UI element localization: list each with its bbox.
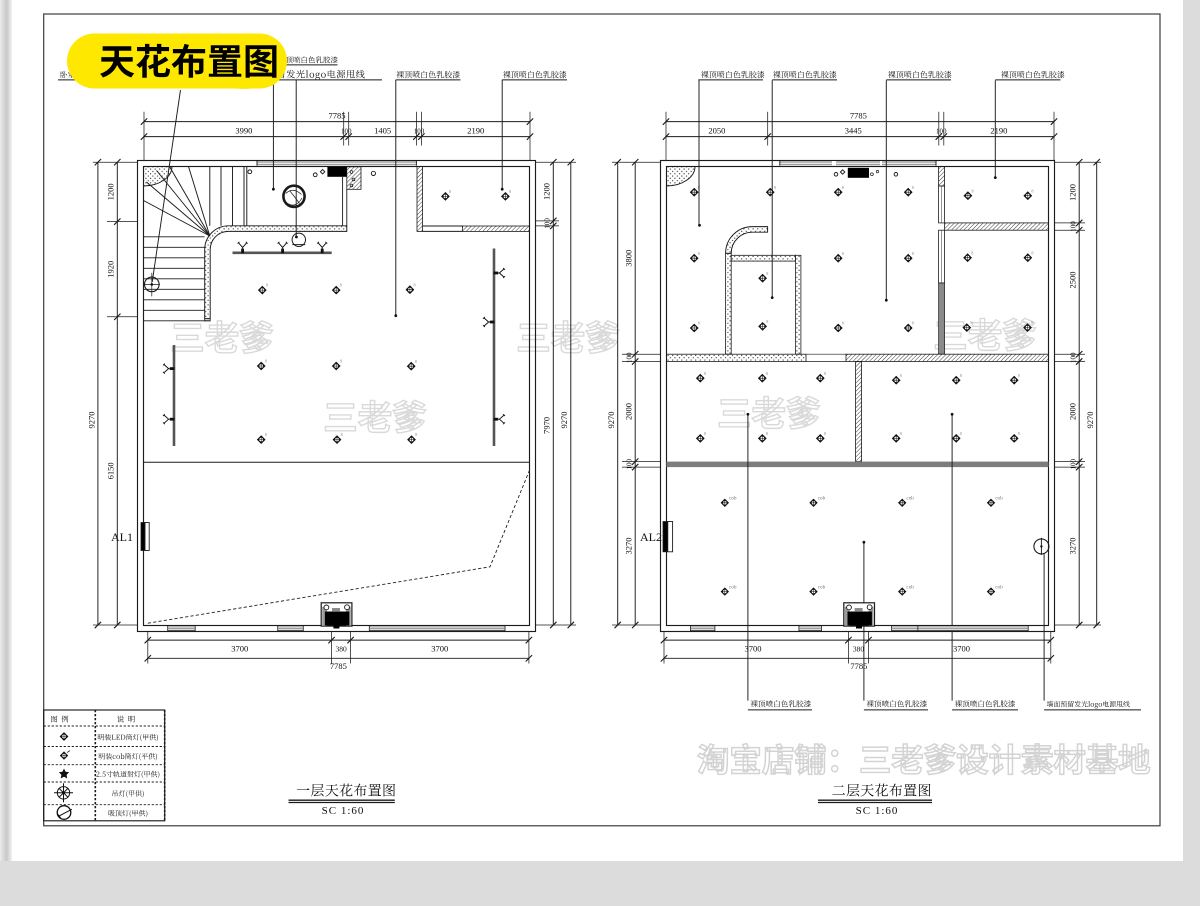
svg-text:8: 8 [704, 371, 706, 376]
svg-text:8: 8 [704, 431, 706, 436]
svg-text:7785: 7785 [850, 111, 867, 121]
svg-text:3700: 3700 [745, 643, 762, 653]
svg-text:9270: 9270 [1085, 412, 1095, 429]
svg-text:3800: 3800 [624, 250, 634, 267]
svg-text:8: 8 [1018, 431, 1020, 436]
svg-text:3700: 3700 [953, 643, 970, 653]
svg-text:2190: 2190 [990, 125, 1007, 135]
svg-text:1920: 1920 [106, 261, 116, 278]
svg-text:7785: 7785 [330, 661, 347, 671]
svg-text:380: 380 [853, 644, 865, 653]
svg-text:8: 8 [266, 283, 268, 288]
svg-text:3990: 3990 [235, 125, 252, 135]
svg-text:8: 8 [340, 359, 342, 364]
svg-text:100: 100 [414, 127, 425, 135]
svg-text:cob: cob [818, 584, 826, 590]
svg-text:8: 8 [960, 373, 962, 378]
svg-text:1200: 1200 [542, 183, 552, 200]
svg-text:8: 8 [766, 371, 768, 376]
svg-text:8: 8 [766, 319, 768, 324]
svg-text:100: 100 [936, 127, 947, 135]
svg-text:cob: cob [906, 496, 914, 502]
svg-text:8: 8 [774, 185, 776, 190]
svg-text:8: 8 [415, 432, 417, 437]
svg-text:8: 8 [415, 359, 417, 364]
svg-text:100: 100 [544, 218, 552, 229]
svg-text:2050: 2050 [708, 125, 725, 135]
svg-text:1405: 1405 [374, 125, 391, 135]
svg-text:8: 8 [509, 189, 511, 194]
svg-text:cob: cob [995, 584, 1003, 590]
svg-text:8: 8 [842, 251, 844, 256]
svg-text:SC 1:60: SC 1:60 [856, 805, 899, 817]
svg-text:9270: 9270 [86, 412, 96, 429]
svg-text:cob: cob [818, 496, 826, 502]
svg-text:cob: cob [729, 584, 737, 590]
svg-text:cob: cob [729, 496, 737, 502]
svg-text:8: 8 [766, 271, 768, 276]
svg-text:8: 8 [1018, 373, 1020, 378]
svg-text:3445: 3445 [845, 125, 862, 135]
svg-text:SC 1:60: SC 1:60 [322, 805, 365, 817]
svg-text:8: 8 [265, 359, 267, 364]
svg-text:8: 8 [449, 189, 451, 194]
svg-text:8: 8 [972, 188, 974, 193]
svg-text:8: 8 [1031, 320, 1033, 325]
svg-text:8: 8 [1031, 188, 1033, 193]
svg-text:2190: 2190 [467, 125, 484, 135]
svg-text:2500: 2500 [1068, 272, 1078, 289]
svg-text:8: 8 [698, 321, 700, 326]
svg-text:8: 8 [912, 321, 914, 326]
svg-text:8: 8 [414, 282, 416, 287]
svg-text:1200: 1200 [1068, 184, 1078, 201]
svg-text:3270: 3270 [1068, 538, 1078, 555]
svg-text:100: 100 [626, 459, 634, 470]
svg-text:cob: cob [995, 496, 1003, 502]
svg-text:8: 8 [970, 320, 972, 325]
svg-text:7970: 7970 [542, 417, 552, 434]
svg-text:8: 8 [1031, 250, 1033, 255]
svg-text:8: 8 [900, 373, 902, 378]
svg-text:8: 8 [842, 185, 844, 190]
svg-text:9270: 9270 [606, 412, 616, 429]
svg-text:1200: 1200 [106, 183, 116, 200]
svg-text:8: 8 [824, 431, 826, 436]
svg-text:8: 8 [766, 431, 768, 436]
svg-text:8: 8 [698, 251, 700, 256]
svg-text:2000: 2000 [624, 403, 634, 420]
svg-text:8: 8 [842, 321, 844, 326]
svg-text:2000: 2000 [1068, 403, 1078, 420]
svg-text:6150: 6150 [106, 462, 116, 479]
svg-text:8: 8 [265, 432, 267, 437]
svg-text:3270: 3270 [624, 538, 634, 555]
svg-text:8: 8 [341, 432, 343, 437]
svg-text:3700: 3700 [431, 643, 448, 653]
svg-text:cob: cob [906, 584, 914, 590]
svg-text:AL1: AL1 [111, 530, 133, 544]
svg-text:100: 100 [341, 127, 352, 135]
svg-text:8: 8 [900, 431, 902, 436]
svg-text:8: 8 [340, 283, 342, 288]
svg-text:7785: 7785 [850, 661, 867, 671]
svg-text:100: 100 [1070, 459, 1078, 470]
svg-text:7785: 7785 [329, 111, 346, 121]
svg-text:9270: 9270 [559, 412, 569, 429]
svg-text:3700: 3700 [231, 643, 248, 653]
svg-text:8: 8 [971, 250, 973, 255]
svg-text:8: 8 [824, 371, 826, 376]
svg-text:380: 380 [335, 644, 347, 653]
svg-text:8: 8 [912, 251, 914, 256]
svg-text:8: 8 [960, 431, 962, 436]
svg-text:8: 8 [912, 185, 914, 190]
svg-text:AL2: AL2 [640, 530, 662, 544]
